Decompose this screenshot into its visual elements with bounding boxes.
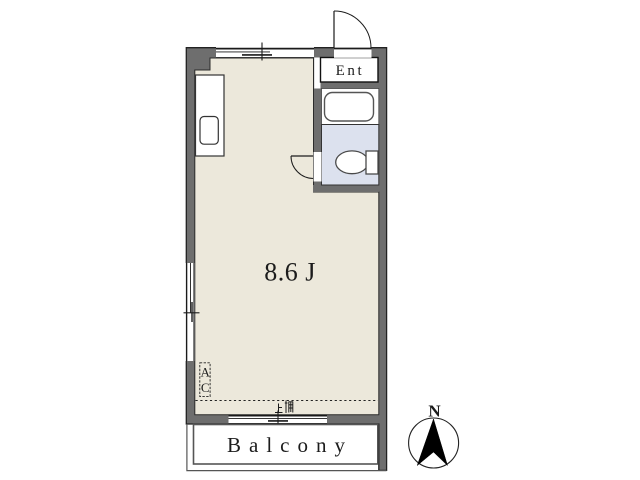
svg-text:C: C [201,380,210,395]
svg-text:N: N [428,401,441,420]
svg-text:Ent: Ent [336,63,365,79]
svg-text:Balcony: Balcony [227,433,353,457]
svg-text:A: A [201,365,211,380]
svg-text:8.6 J: 8.6 J [264,258,316,287]
